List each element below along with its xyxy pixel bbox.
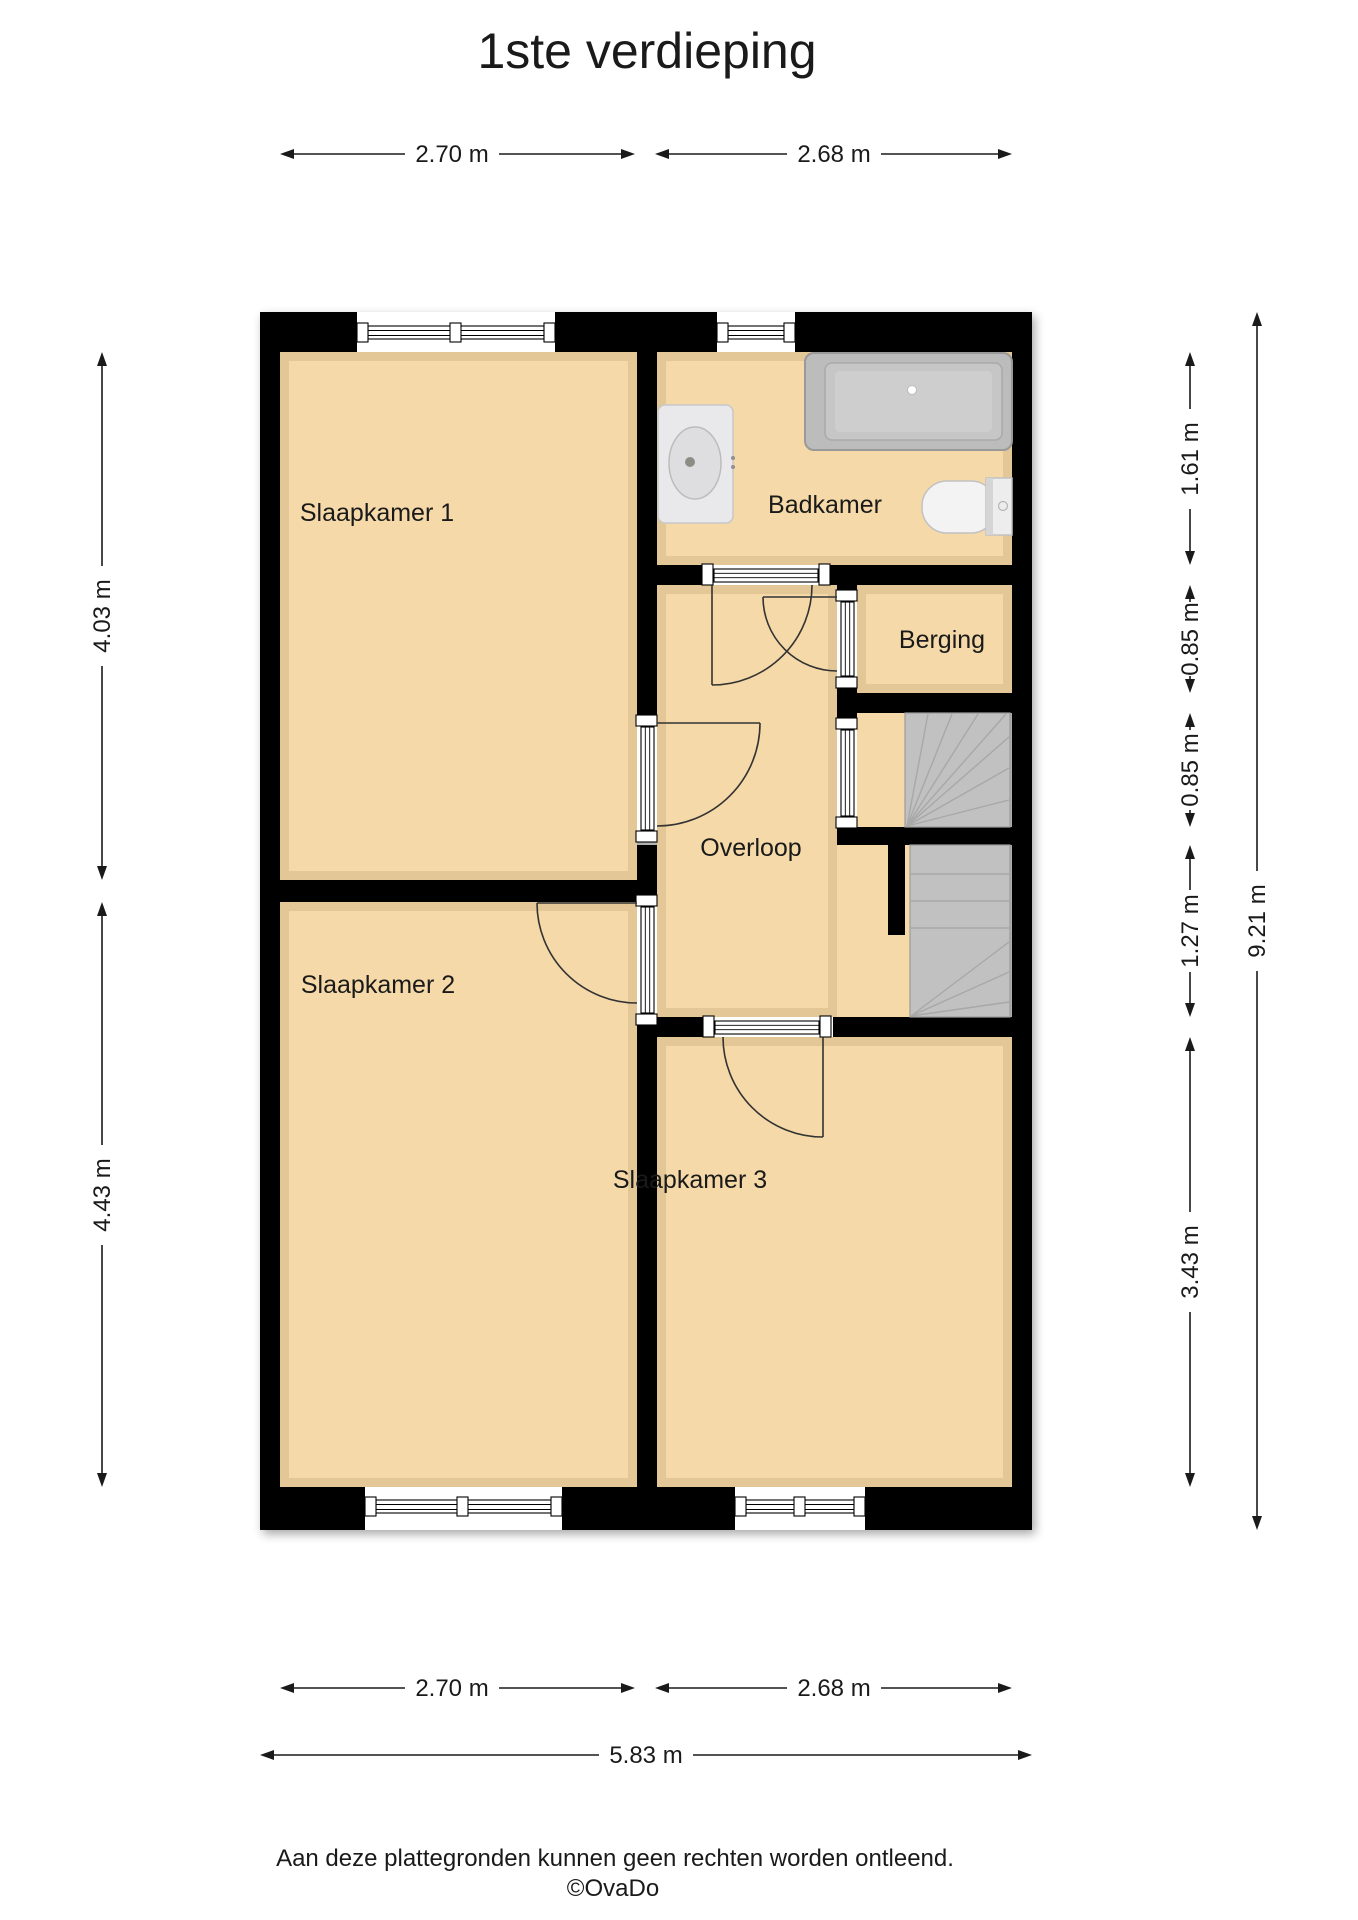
dim-right-5: 3.43 m bbox=[1177, 1225, 1204, 1298]
door-badkamer-icon bbox=[702, 564, 830, 585]
dim-right-4: 1.27 m bbox=[1177, 894, 1204, 967]
dim-right-2: 0.85 m bbox=[1177, 602, 1204, 675]
door-stairwell-icon bbox=[836, 718, 857, 828]
overloop-floor bbox=[657, 585, 837, 1017]
toilet-icon bbox=[922, 478, 1012, 535]
room-label-slaapkamer-3: Slaapkamer 3 bbox=[613, 1166, 767, 1194]
window-slaapkamer-2-icon bbox=[365, 1487, 562, 1530]
dim-right-1: 1.61 m bbox=[1177, 422, 1204, 495]
slaapkamer-1-floor bbox=[280, 352, 637, 880]
room-label-slaapkamer-2: Slaapkamer 2 bbox=[301, 971, 455, 999]
window-badkamer-icon bbox=[717, 312, 795, 352]
dimension-right-total: 9.21 m bbox=[1244, 312, 1271, 1530]
room-label-badkamer: Badkamer bbox=[768, 491, 882, 519]
dim-bottom-total: 5.83 m bbox=[609, 1742, 682, 1769]
dim-bottom-left: 2.70 m bbox=[415, 1675, 488, 1702]
room-label-berging: Berging bbox=[899, 626, 985, 654]
footer-disclaimer: Aan deze plattegronden kunnen geen recht… bbox=[276, 1845, 954, 1872]
dim-top-left: 2.70 m bbox=[415, 141, 488, 168]
bathtub-icon bbox=[805, 353, 1012, 450]
dim-right-total: 9.21 m bbox=[1244, 884, 1271, 957]
sink-icon bbox=[658, 405, 735, 523]
footer-credit: ©OvaDo bbox=[567, 1875, 659, 1902]
footer: Aan deze plattegronden kunnen geen recht… bbox=[276, 1845, 954, 1902]
door-slaapkamer-1-icon bbox=[636, 715, 657, 842]
dimension-column-left: 4.03 m 4.43 m bbox=[89, 352, 116, 1487]
floor-plan: Slaapkamer 1 Slaapkamer 2 Slaapkamer 3 B… bbox=[260, 312, 1032, 1530]
room-label-slaapkamer-1: Slaapkamer 1 bbox=[300, 499, 454, 527]
dimension-row-bottom-total: 5.83 m bbox=[260, 1742, 1032, 1769]
window-slaapkamer-3-icon bbox=[735, 1487, 865, 1530]
dimension-row-top: 2.70 m 2.68 m bbox=[280, 141, 1012, 168]
dim-left-1: 4.03 m bbox=[89, 579, 116, 652]
staircase-icon bbox=[905, 713, 1010, 1017]
window-slaapkamer-1-icon bbox=[357, 312, 555, 352]
room-label-overloop: Overloop bbox=[700, 834, 801, 862]
floorplan-canvas: 1ste verdieping 2.70 m 2.68 m 4.03 m 4.4… bbox=[0, 0, 1358, 1920]
page-title: 1ste verdieping bbox=[477, 23, 816, 79]
door-slaapkamer-3-icon bbox=[703, 1016, 833, 1037]
dimension-row-bottom: 2.70 m 2.68 m bbox=[280, 1675, 1012, 1702]
dim-left-2: 4.43 m bbox=[89, 1158, 116, 1231]
slaapkamer-3-floor bbox=[657, 1037, 1012, 1487]
dim-bottom-right: 2.68 m bbox=[797, 1675, 870, 1702]
door-slaapkamer-2-icon bbox=[636, 895, 657, 1025]
door-berging-icon bbox=[836, 590, 857, 688]
dimension-column-right: 1.61 m 0.85 m 0.85 m 1.27 m 3.43 m bbox=[1177, 352, 1204, 1487]
stair-landing-floor bbox=[857, 713, 905, 827]
dim-right-3: 0.85 m bbox=[1177, 733, 1204, 806]
dim-top-right: 2.68 m bbox=[797, 141, 870, 168]
